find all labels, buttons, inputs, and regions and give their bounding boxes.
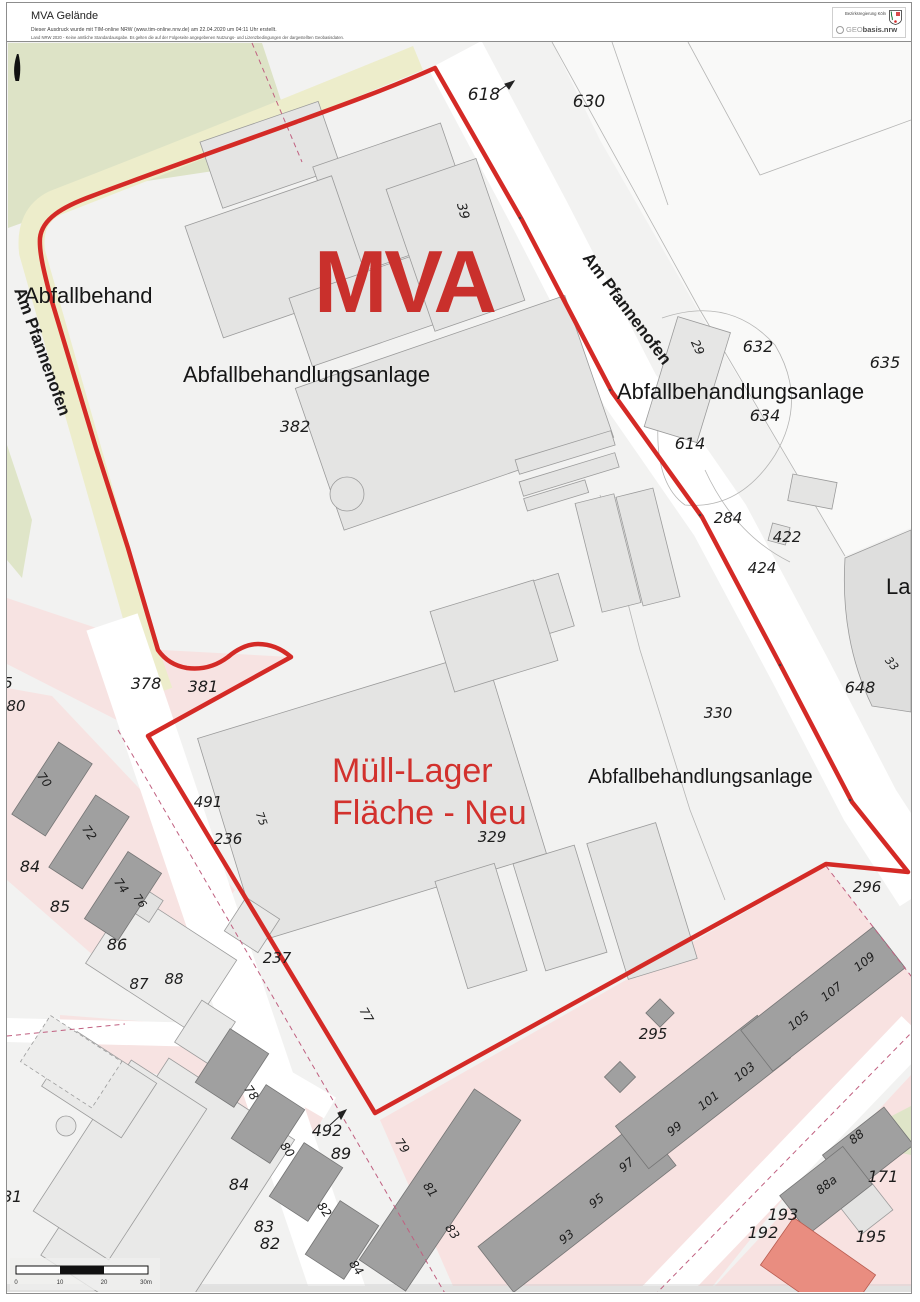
disclaimer-line2: Land NRW 2020 - Keine amtliche Standarda… [31, 35, 344, 40]
parcel-number-label: 648 [845, 678, 876, 697]
tim-online-map-print: { "header": { "title": "MVA Gelände", "d… [0, 0, 920, 1302]
geobasis-logo-prefix: GEO [846, 25, 863, 34]
logo-box: Bezirksregierung Köln GEObasis.nrw [832, 7, 906, 38]
parcel-number-label: 84 [229, 1175, 249, 1194]
parcel-number-label: 85 [50, 897, 70, 916]
parcel-number-label: 424 [748, 559, 777, 577]
agency-label: Bezirksregierung Köln [836, 11, 886, 16]
parcel-number-label: 86 [107, 935, 127, 954]
parcel-number-label: 330 [704, 704, 733, 722]
geobasis-logo: GEObasis.nrw [836, 25, 897, 34]
parcel-number-label: 618 [468, 85, 501, 105]
area-label: Abfallbehandlungsanlage [183, 362, 430, 387]
parcel-number-label: 630 [573, 92, 605, 112]
site-annotation-line2: Fläche - Neu [332, 794, 527, 832]
disclaimer-line1: Dieser Ausdruck wurde mit TIM-online NRW… [31, 27, 277, 33]
parcel-number-label: 614 [675, 434, 706, 453]
parcel-number-label: 296 [853, 878, 882, 896]
parcel-number-label: 5 [7, 674, 13, 692]
parcel-number-label: 87 [129, 975, 149, 993]
parcel-number-label: 80 [7, 697, 26, 715]
area-label: La [886, 574, 911, 599]
globe-icon [836, 26, 844, 34]
parcel-number-label: 171 [868, 1167, 899, 1186]
parcel-number-label: 192 [748, 1223, 779, 1242]
parcel-number-label: 237 [263, 949, 292, 967]
parcel-number-label: 634 [750, 406, 781, 425]
parcel-number-label: 422 [773, 528, 802, 546]
parcel-number-label: 284 [714, 509, 743, 527]
parcel-number-label: 84 [20, 857, 40, 876]
parcel-number-label: 632 [743, 337, 774, 356]
parcel-number-label: 82 [260, 1234, 280, 1253]
site-annotation-line1: Müll-Lager [332, 752, 493, 790]
parcel-number-label: 88 [164, 970, 183, 988]
parcel-number-label: 195 [856, 1227, 887, 1246]
print-header: MVA Gelände Dieser Ausdruck wurde mit TI… [7, 3, 911, 42]
mva-annotation: MVA [314, 232, 495, 331]
page-title: MVA Gelände [31, 10, 98, 22]
parcel-number-label: 378 [131, 674, 162, 693]
parcel-number-label: 635 [870, 353, 901, 372]
area-label: Abfallbehand [24, 283, 152, 308]
parcel-number-label: 193 [768, 1205, 799, 1224]
parcel-number-label: 491 [194, 793, 223, 811]
map-canvas: MVA Müll-Lager Fläche - Neu Am Pfannenof… [7, 42, 911, 1292]
scale-tick-20: 20 [101, 1280, 108, 1286]
parcel-number-label: 295 [639, 1025, 668, 1043]
scale-tick-10: 10 [57, 1280, 64, 1286]
parcel-number-label: 492 [312, 1121, 343, 1140]
parcel-number-label: 382 [280, 417, 311, 436]
scale-bar: 0 10 20 30m [10, 1258, 160, 1290]
parcel-number-label: 381 [188, 677, 219, 696]
parcel-number-label: 236 [214, 830, 243, 848]
geobasis-logo-suffix: basis.nrw [863, 25, 898, 34]
parcel-number-label: 329 [478, 828, 507, 846]
area-label: Abfallbehandlungsanlage [617, 379, 864, 404]
parcel-number-label: 89 [331, 1144, 351, 1163]
scale-tick-30m: 30m [140, 1280, 152, 1286]
parcel-number-label: 81 [7, 1187, 22, 1206]
area-label: Abfallbehandlungsanlage [588, 766, 813, 788]
